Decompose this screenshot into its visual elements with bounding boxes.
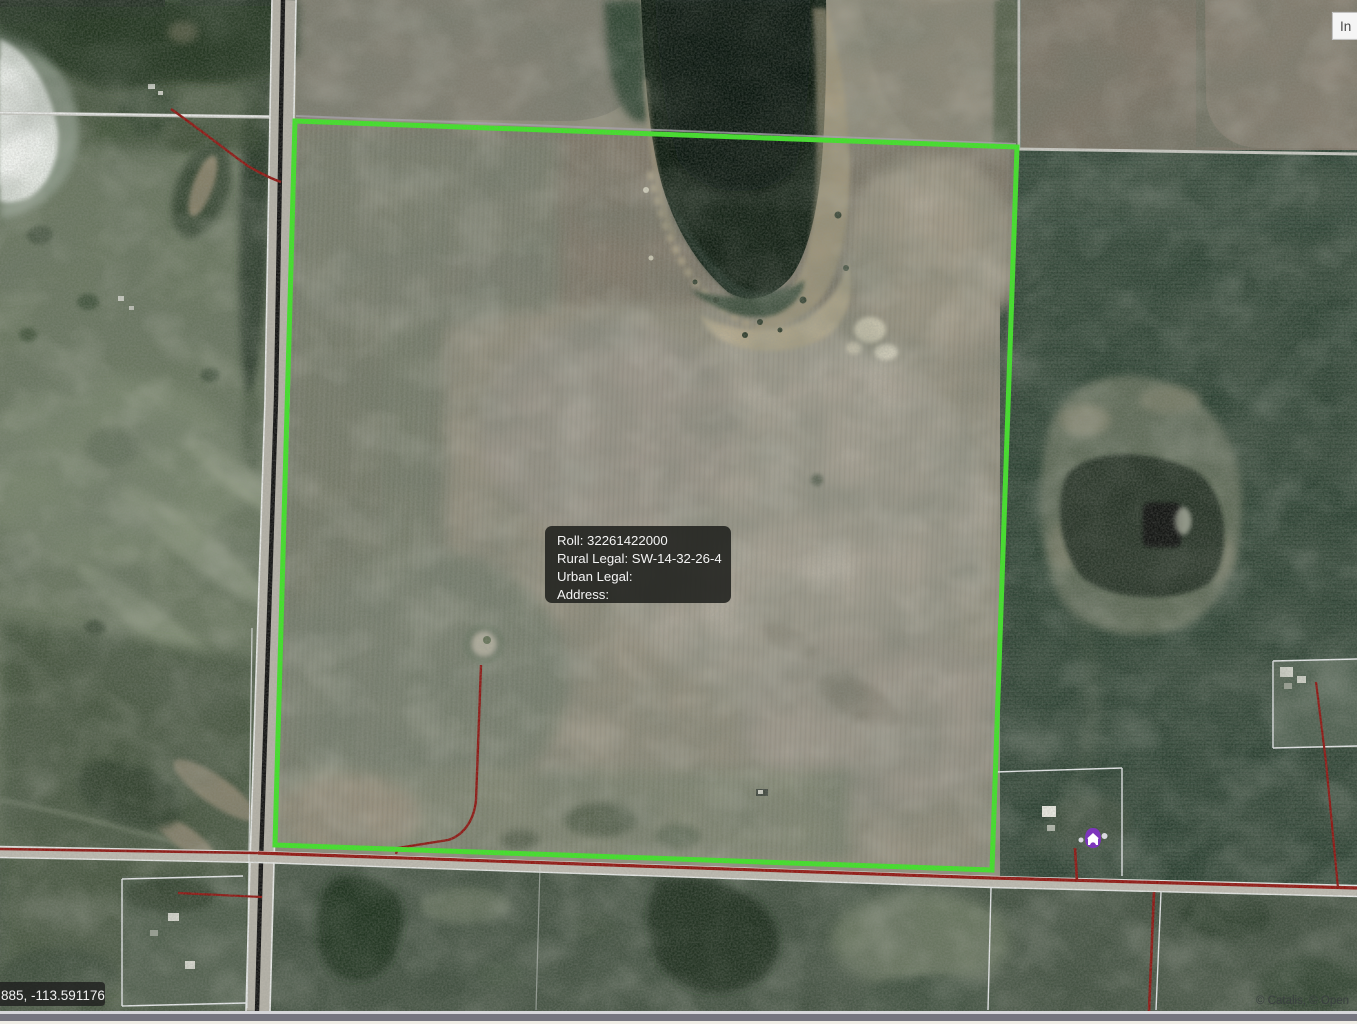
svg-text:© Catalis, © Open: © Catalis, © Open [1256, 995, 1349, 1007]
svg-text:In: In [1340, 19, 1351, 34]
svg-text:Roll: 32261422000: Roll: 32261422000 [557, 533, 668, 548]
svg-text:885, -113.591176: 885, -113.591176 [1, 988, 105, 1003]
svg-text:Rural Legal: SW-14-32-26-4: Rural Legal: SW-14-32-26-4 [557, 551, 722, 566]
svg-text:Address:: Address: [557, 587, 609, 602]
svg-text:Urban Legal:: Urban Legal: [557, 569, 633, 584]
